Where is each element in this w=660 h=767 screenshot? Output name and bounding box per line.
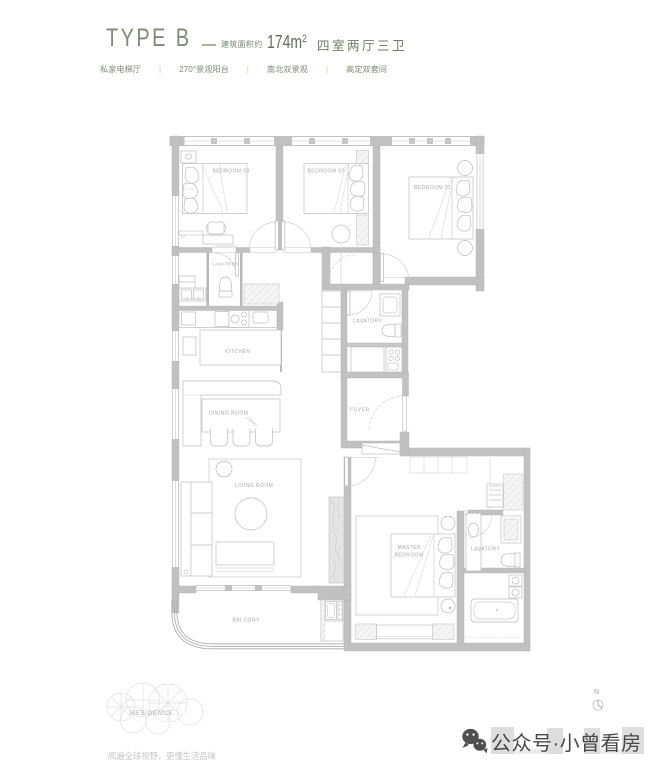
- svg-text:LAVATORY: LAVATORY: [471, 547, 501, 553]
- svg-text:BALCONY: BALCONY: [233, 618, 261, 624]
- svg-text:KITCHEN: KITCHEN: [225, 349, 250, 355]
- svg-text:BEDROOM 03: BEDROOM 03: [213, 169, 250, 175]
- svg-text:FOYER: FOYER: [350, 408, 370, 414]
- svg-text:N: N: [594, 689, 599, 696]
- svg-text:DINING ROOM: DINING ROOM: [209, 411, 248, 417]
- svg-text:RESIDENCE: RESIDENCE: [130, 710, 173, 717]
- svg-text:BEDROOM: BEDROOM: [395, 553, 424, 559]
- svg-text:BEDROOM 01: BEDROOM 01: [414, 185, 451, 191]
- svg-text:LIVING ROOM: LIVING ROOM: [235, 483, 273, 489]
- svg-text:MASTER: MASTER: [398, 545, 422, 551]
- svg-text:LAVATORY: LAVATORY: [212, 262, 240, 268]
- svg-text:BEDROOM 02: BEDROOM 02: [308, 169, 345, 175]
- svg-text:LAVATORY: LAVATORY: [353, 319, 383, 325]
